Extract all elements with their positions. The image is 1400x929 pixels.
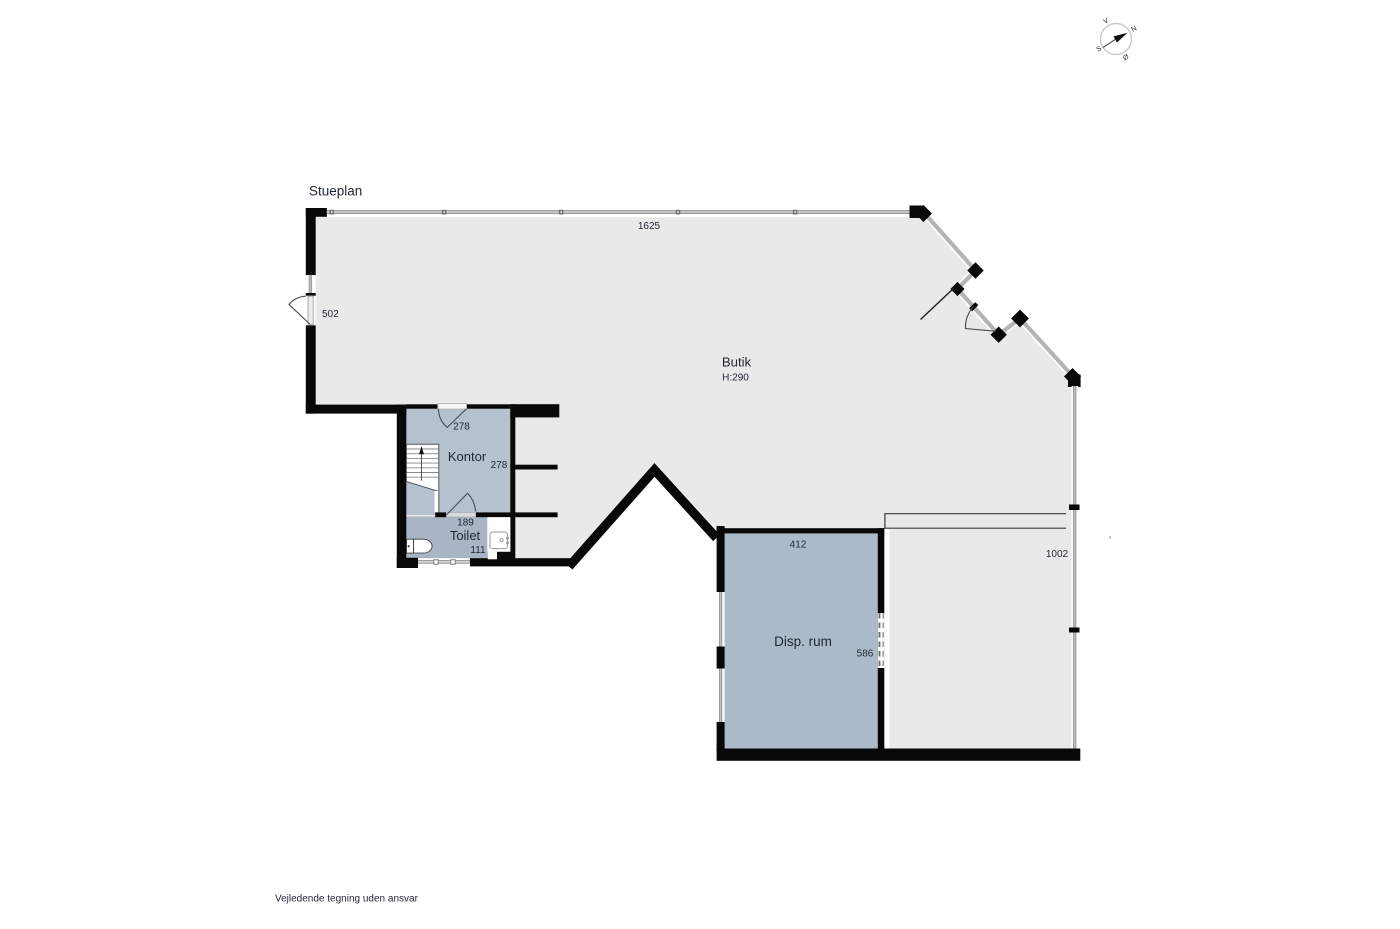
- svg-text:Vejledende tegning uden ansvar: Vejledende tegning uden ansvar: [275, 894, 419, 905]
- svg-text:1002: 1002: [1046, 549, 1069, 560]
- svg-text:Disp. rum: Disp. rum: [774, 634, 832, 649]
- svg-text:502: 502: [322, 309, 339, 320]
- svg-text:189: 189: [457, 518, 474, 529]
- svg-text:Kontor: Kontor: [448, 449, 487, 464]
- svg-text:Butik: Butik: [722, 355, 752, 370]
- svg-text:278: 278: [491, 460, 508, 471]
- svg-text:412: 412: [790, 540, 807, 551]
- svg-text:1625: 1625: [638, 221, 661, 232]
- svg-text:278: 278: [453, 422, 470, 433]
- svg-text:111: 111: [470, 545, 486, 556]
- svg-text:Toilet: Toilet: [450, 528, 481, 543]
- svg-text:586: 586: [857, 649, 874, 660]
- svg-text:Stueplan: Stueplan: [309, 184, 362, 199]
- svg-text:H:290: H:290: [722, 373, 749, 384]
